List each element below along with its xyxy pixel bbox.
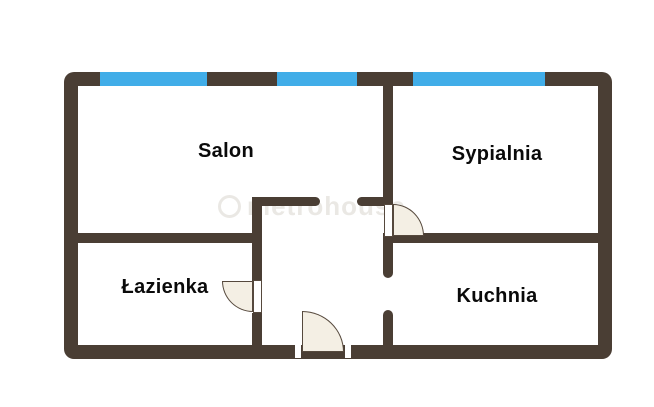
window-segment-1 bbox=[100, 72, 207, 86]
window-segment-2 bbox=[277, 72, 357, 86]
wall-hallway-left-lower bbox=[252, 313, 262, 347]
wall-hallway-right-lower bbox=[383, 310, 393, 347]
entrance-door-jamb-right bbox=[345, 345, 351, 358]
wall-hallway-right-upper bbox=[383, 238, 393, 278]
wall-salon-lazienka bbox=[72, 233, 262, 243]
entrance-door-jamb-left bbox=[295, 345, 301, 358]
window-segment-3 bbox=[413, 72, 545, 86]
wall-hallway-top bbox=[252, 197, 320, 206]
wall-salon-sypialnia bbox=[383, 84, 393, 206]
floor-plan-canvas: metrohouse Salon Sypialnia Łazienka Kuch… bbox=[0, 0, 654, 407]
outer-wall-frame bbox=[64, 72, 612, 359]
lazienka-door-panel bbox=[253, 280, 262, 313]
sypialnia-door-panel bbox=[384, 204, 393, 237]
